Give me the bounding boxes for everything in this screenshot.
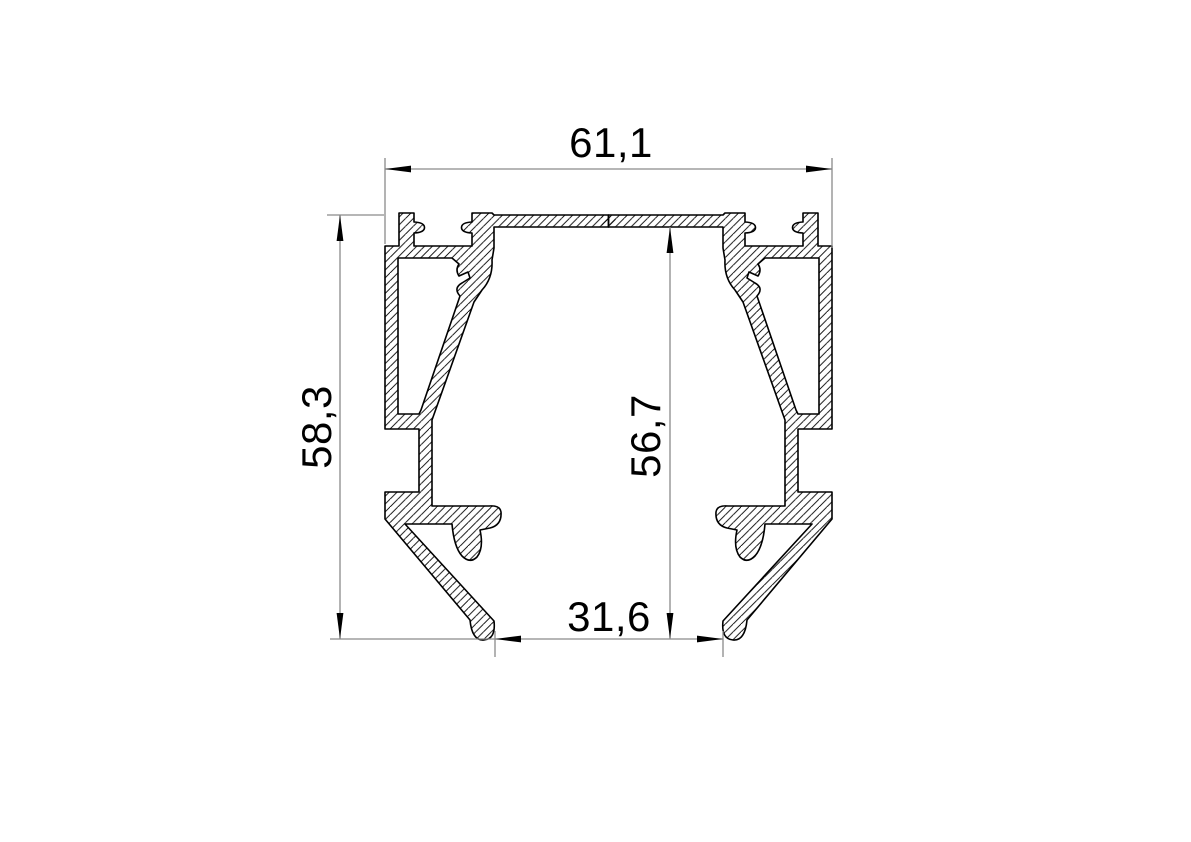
drawing-canvas: 61,1 58,3 56,7 31,6 [0, 0, 1191, 842]
profile-center-joint [602, 216, 616, 225]
dimension-height-inner: 56,7 [622, 227, 673, 639]
dim-label-height-inner: 56,7 [622, 394, 669, 478]
extrusion-profile [385, 213, 832, 640]
arrowhead-right [697, 636, 723, 643]
arrowhead-left [385, 166, 411, 173]
dimension-width-top: 61,1 [385, 119, 832, 248]
arrowhead-top [337, 215, 344, 241]
arrowhead-top [667, 227, 674, 253]
dim-label-width-bottom: 31,6 [567, 593, 651, 640]
profile-cross-section-drawing: 61,1 58,3 56,7 31,6 [0, 0, 1191, 842]
arrowhead-right [806, 166, 832, 173]
arrowhead-left [495, 636, 521, 643]
arrowhead-bottom [337, 613, 344, 639]
dim-label-width-top: 61,1 [569, 119, 653, 166]
arrowhead-bottom [667, 613, 674, 639]
dim-label-height-left: 58,3 [293, 385, 340, 469]
dimension-width-bottom: 31,6 [495, 593, 723, 657]
profile-left-half [385, 213, 609, 640]
